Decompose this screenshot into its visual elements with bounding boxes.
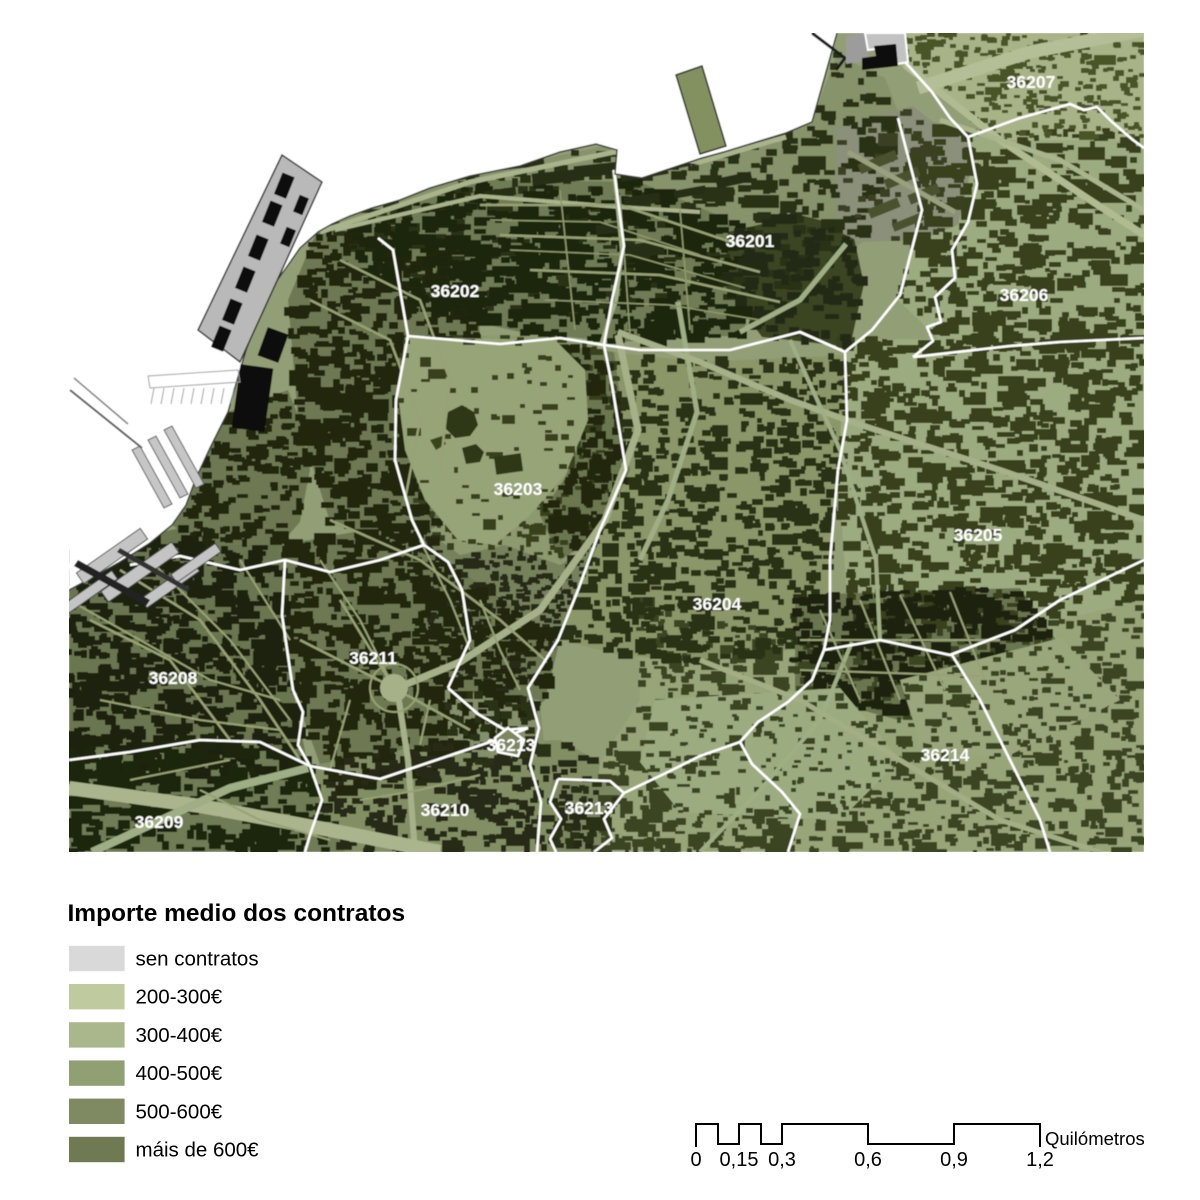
svg-text:Quilómetros: Quilómetros <box>1045 1128 1145 1149</box>
svg-text:500-600€: 500-600€ <box>136 1100 223 1123</box>
svg-text:36206: 36206 <box>1000 285 1049 305</box>
svg-text:36201: 36201 <box>726 231 775 251</box>
svg-text:36213: 36213 <box>565 798 614 818</box>
svg-text:36213: 36213 <box>487 735 536 755</box>
svg-text:400-500€: 400-500€ <box>136 1062 223 1085</box>
svg-text:36207: 36207 <box>1007 72 1056 92</box>
svg-text:36214: 36214 <box>921 745 970 765</box>
svg-text:36202: 36202 <box>431 281 480 301</box>
svg-text:0,3: 0,3 <box>768 1149 796 1171</box>
svg-text:máis de 600€: máis de 600€ <box>136 1139 260 1162</box>
svg-text:sen contratos: sen contratos <box>136 948 259 971</box>
svg-text:36204: 36204 <box>693 594 742 614</box>
svg-text:0,6: 0,6 <box>854 1149 882 1171</box>
svg-text:Importe medio dos contratos: Importe medio dos contratos <box>68 900 406 927</box>
svg-text:36203: 36203 <box>494 479 543 499</box>
svg-text:36205: 36205 <box>954 525 1003 545</box>
svg-text:36208: 36208 <box>149 668 198 688</box>
svg-text:36209: 36209 <box>135 812 184 832</box>
svg-text:1,2: 1,2 <box>1026 1149 1054 1171</box>
svg-text:0,9: 0,9 <box>940 1149 968 1171</box>
svg-text:0,15: 0,15 <box>720 1149 759 1171</box>
svg-text:36210: 36210 <box>421 800 470 820</box>
svg-text:300-400€: 300-400€ <box>136 1024 223 1047</box>
svg-text:0: 0 <box>690 1149 701 1171</box>
svg-text:36211: 36211 <box>349 648 397 668</box>
svg-text:200-300€: 200-300€ <box>136 986 223 1009</box>
